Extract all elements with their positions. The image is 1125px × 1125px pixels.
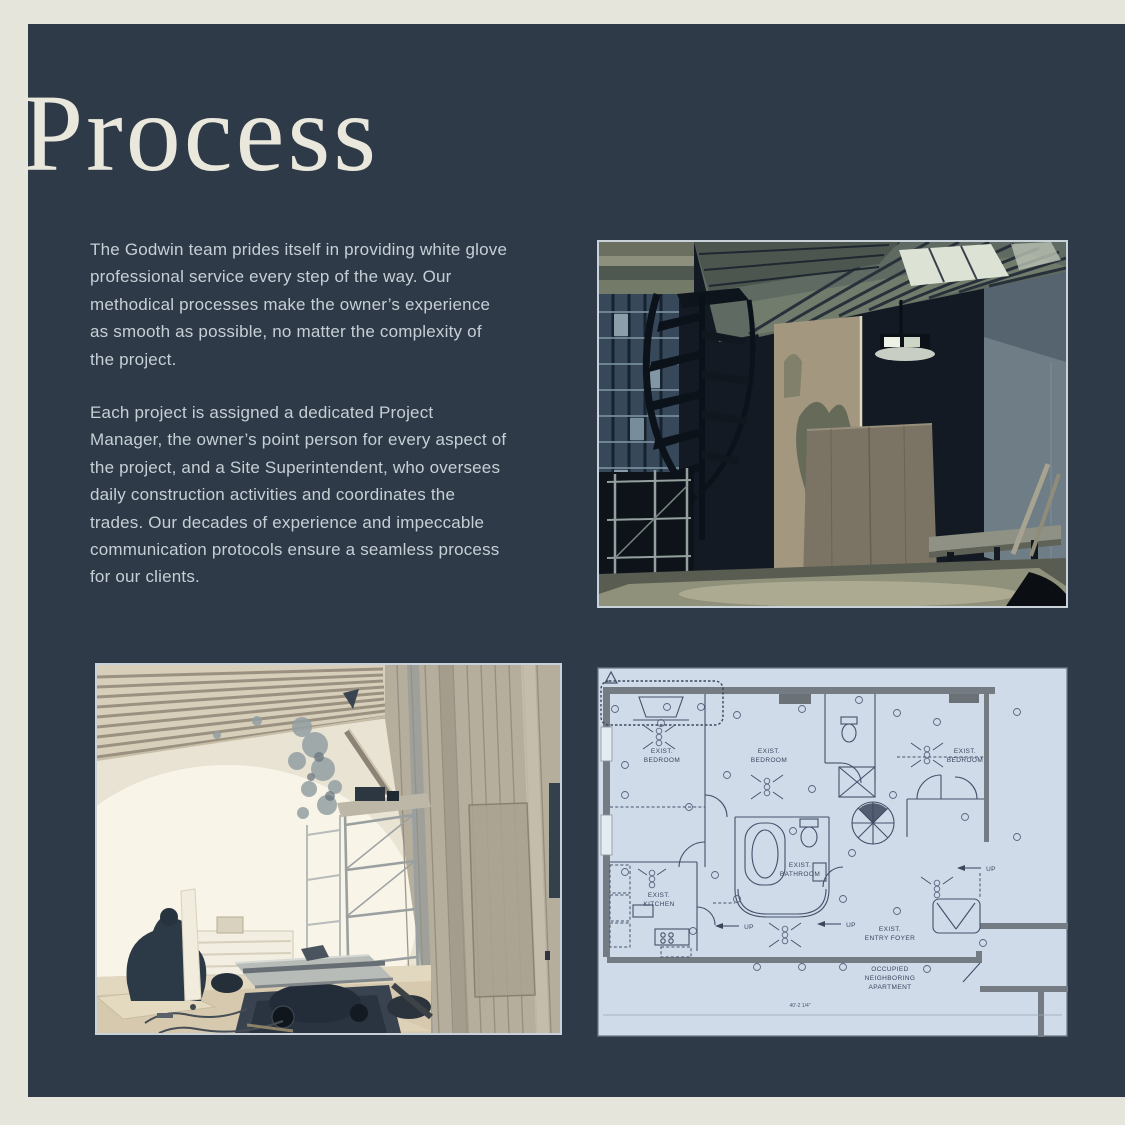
photo-construction-interior: [597, 240, 1068, 608]
room-label-kitchen: EXIST.: [648, 892, 670, 899]
svg-text:UP: UP: [846, 922, 856, 929]
svg-text:BEDROOM: BEDROOM: [947, 757, 983, 764]
brochure-canvas: Process The Godwin team prides itself in…: [0, 0, 1125, 1125]
intro-paragraph-2: Each project is assigned a dedicated Pro…: [90, 399, 510, 591]
room-label-bedroom-3: EXIST.: [954, 748, 976, 755]
svg-text:UP: UP: [744, 924, 754, 931]
floor-plan-drawing: UP UP UP EXIST. BEDROOM EXIST. BEDROOM E…: [597, 667, 1068, 1037]
label-occupied-apartment: OCCUPIED: [871, 966, 909, 973]
construction-interior-illustration: [599, 242, 1066, 606]
renovation-room-illustration: [97, 665, 560, 1033]
intro-text-block: The Godwin team prides itself in providi…: [90, 236, 510, 617]
intro-paragraph-1: The Godwin team prides itself in providi…: [90, 236, 510, 373]
page-title: Process: [22, 78, 379, 188]
svg-text:APARTMENT: APARTMENT: [868, 984, 911, 991]
svg-text:UP: UP: [986, 866, 996, 873]
room-label-bedroom-1: EXIST.: [651, 748, 673, 755]
svg-text:BEDROOM: BEDROOM: [644, 757, 680, 764]
dimension-label: 40'-2 1/4": [789, 1003, 810, 1009]
spiral-stair-symbol: [852, 802, 894, 844]
svg-text:NEIGHBORING: NEIGHBORING: [865, 975, 916, 982]
svg-text:ENTRY FOYER: ENTRY FOYER: [865, 935, 915, 942]
svg-text:BATHROOM: BATHROOM: [780, 871, 820, 878]
brochure-page: Process The Godwin team prides itself in…: [28, 24, 1125, 1097]
room-label-entry-foyer: EXIST.: [879, 926, 901, 933]
svg-text:KITCHEN: KITCHEN: [643, 901, 674, 908]
floor-plan-image: UP UP UP EXIST. BEDROOM EXIST. BEDROOM E…: [597, 667, 1068, 1037]
room-label-bathroom: EXIST.: [789, 862, 811, 869]
plywood-panel: [803, 424, 937, 582]
photo-renovation-room: [95, 663, 562, 1035]
room-label-bedroom-2: EXIST.: [758, 748, 780, 755]
svg-text:BEDROOM: BEDROOM: [751, 757, 787, 764]
